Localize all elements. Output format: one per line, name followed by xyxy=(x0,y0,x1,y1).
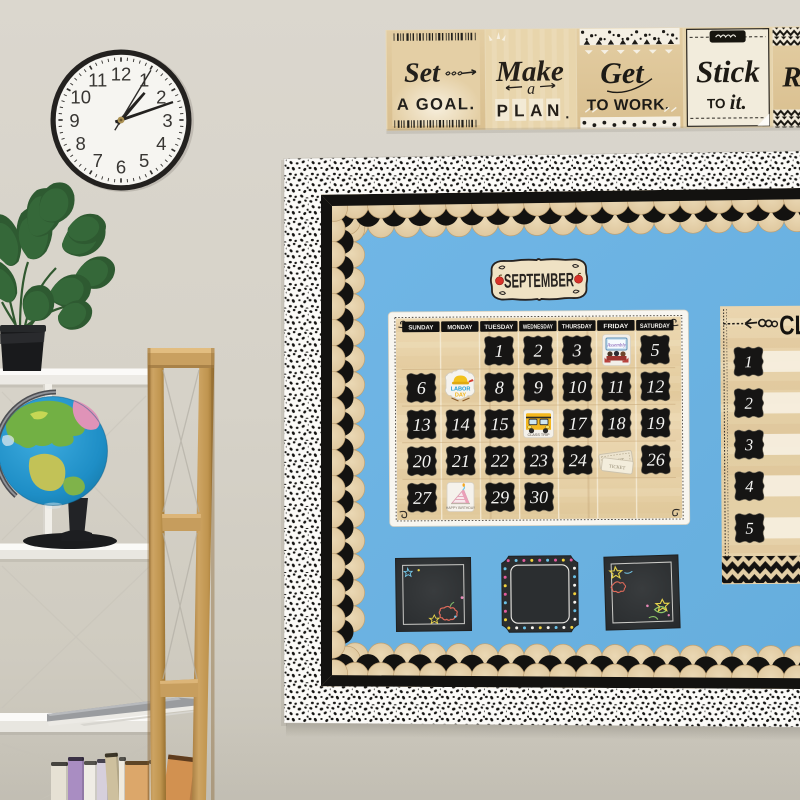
svg-text:15: 15 xyxy=(490,414,508,434)
svg-text:CLASS TRIP: CLASS TRIP xyxy=(527,433,550,437)
svg-text:Get: Get xyxy=(600,57,645,90)
svg-text:5: 5 xyxy=(650,340,659,360)
svg-text:HAPPY BIRTHDAY: HAPPY BIRTHDAY xyxy=(446,506,476,510)
svg-text:Stick: Stick xyxy=(696,54,761,90)
svg-text:Set: Set xyxy=(404,58,441,89)
svg-text:3: 3 xyxy=(744,435,753,454)
svg-text:17: 17 xyxy=(568,413,587,433)
svg-text:21: 21 xyxy=(452,451,470,471)
svg-text:1: 1 xyxy=(744,352,752,371)
svg-text:A: A xyxy=(530,101,542,120)
svg-text:18: 18 xyxy=(607,413,625,433)
svg-text:20: 20 xyxy=(413,451,431,471)
svg-text:3: 3 xyxy=(571,340,581,360)
svg-text:P: P xyxy=(497,101,509,120)
svg-text:TUESDAY: TUESDAY xyxy=(484,324,514,331)
svg-text:TO: TO xyxy=(707,96,726,111)
svg-text:4: 4 xyxy=(745,477,753,496)
svg-text:4: 4 xyxy=(156,133,166,154)
svg-text:5: 5 xyxy=(139,150,149,171)
svg-text:27: 27 xyxy=(413,488,432,508)
svg-text:SATURDAY: SATURDAY xyxy=(640,323,671,330)
svg-text:FRIDAY: FRIDAY xyxy=(603,323,629,330)
svg-text:26: 26 xyxy=(647,450,665,470)
svg-text:6: 6 xyxy=(417,378,426,398)
svg-text:it.: it. xyxy=(730,90,747,114)
svg-text:MONDAY: MONDAY xyxy=(447,324,473,331)
svg-text:DAY: DAY xyxy=(455,393,467,399)
svg-text:A GOAL.: A GOAL. xyxy=(397,95,476,114)
svg-text:14: 14 xyxy=(451,414,469,434)
svg-text:9: 9 xyxy=(534,377,543,397)
svg-text:WEDNESDAY: WEDNESDAY xyxy=(523,323,554,330)
svg-text:R: R xyxy=(781,61,800,93)
svg-text:SEPTEMBER: SEPTEMBER xyxy=(504,269,574,292)
svg-text:11: 11 xyxy=(608,377,625,397)
svg-text:THURSDAY: THURSDAY xyxy=(562,323,593,330)
svg-text:N: N xyxy=(547,101,559,120)
svg-text:9: 9 xyxy=(69,110,79,131)
svg-text:Assembly: Assembly xyxy=(606,344,627,349)
svg-text:23: 23 xyxy=(530,450,548,470)
svg-text:19: 19 xyxy=(646,413,664,433)
svg-text:8: 8 xyxy=(495,377,504,397)
svg-text:2: 2 xyxy=(745,394,753,413)
svg-text:8: 8 xyxy=(76,133,86,154)
svg-text:29: 29 xyxy=(491,487,509,507)
svg-text:12: 12 xyxy=(646,376,664,396)
svg-text:2: 2 xyxy=(533,341,542,361)
svg-text:12: 12 xyxy=(111,63,132,84)
svg-text:CLASS: CLASS xyxy=(779,310,800,341)
svg-text:6: 6 xyxy=(116,156,126,177)
svg-text:1: 1 xyxy=(494,341,503,361)
svg-text:.: . xyxy=(565,105,569,121)
svg-text:7: 7 xyxy=(93,150,103,171)
svg-text:3: 3 xyxy=(162,110,172,131)
svg-text:5: 5 xyxy=(745,519,753,538)
svg-text:a: a xyxy=(527,81,535,98)
svg-text:10: 10 xyxy=(568,377,586,397)
svg-text:11: 11 xyxy=(88,70,107,91)
svg-text:TO WORK.: TO WORK. xyxy=(587,97,670,115)
svg-text:24: 24 xyxy=(569,450,587,470)
svg-text:SUNDAY: SUNDAY xyxy=(408,324,434,331)
svg-text:L: L xyxy=(514,101,525,120)
svg-text:13: 13 xyxy=(412,415,430,435)
svg-text:22: 22 xyxy=(491,451,509,471)
svg-text:30: 30 xyxy=(529,487,548,507)
